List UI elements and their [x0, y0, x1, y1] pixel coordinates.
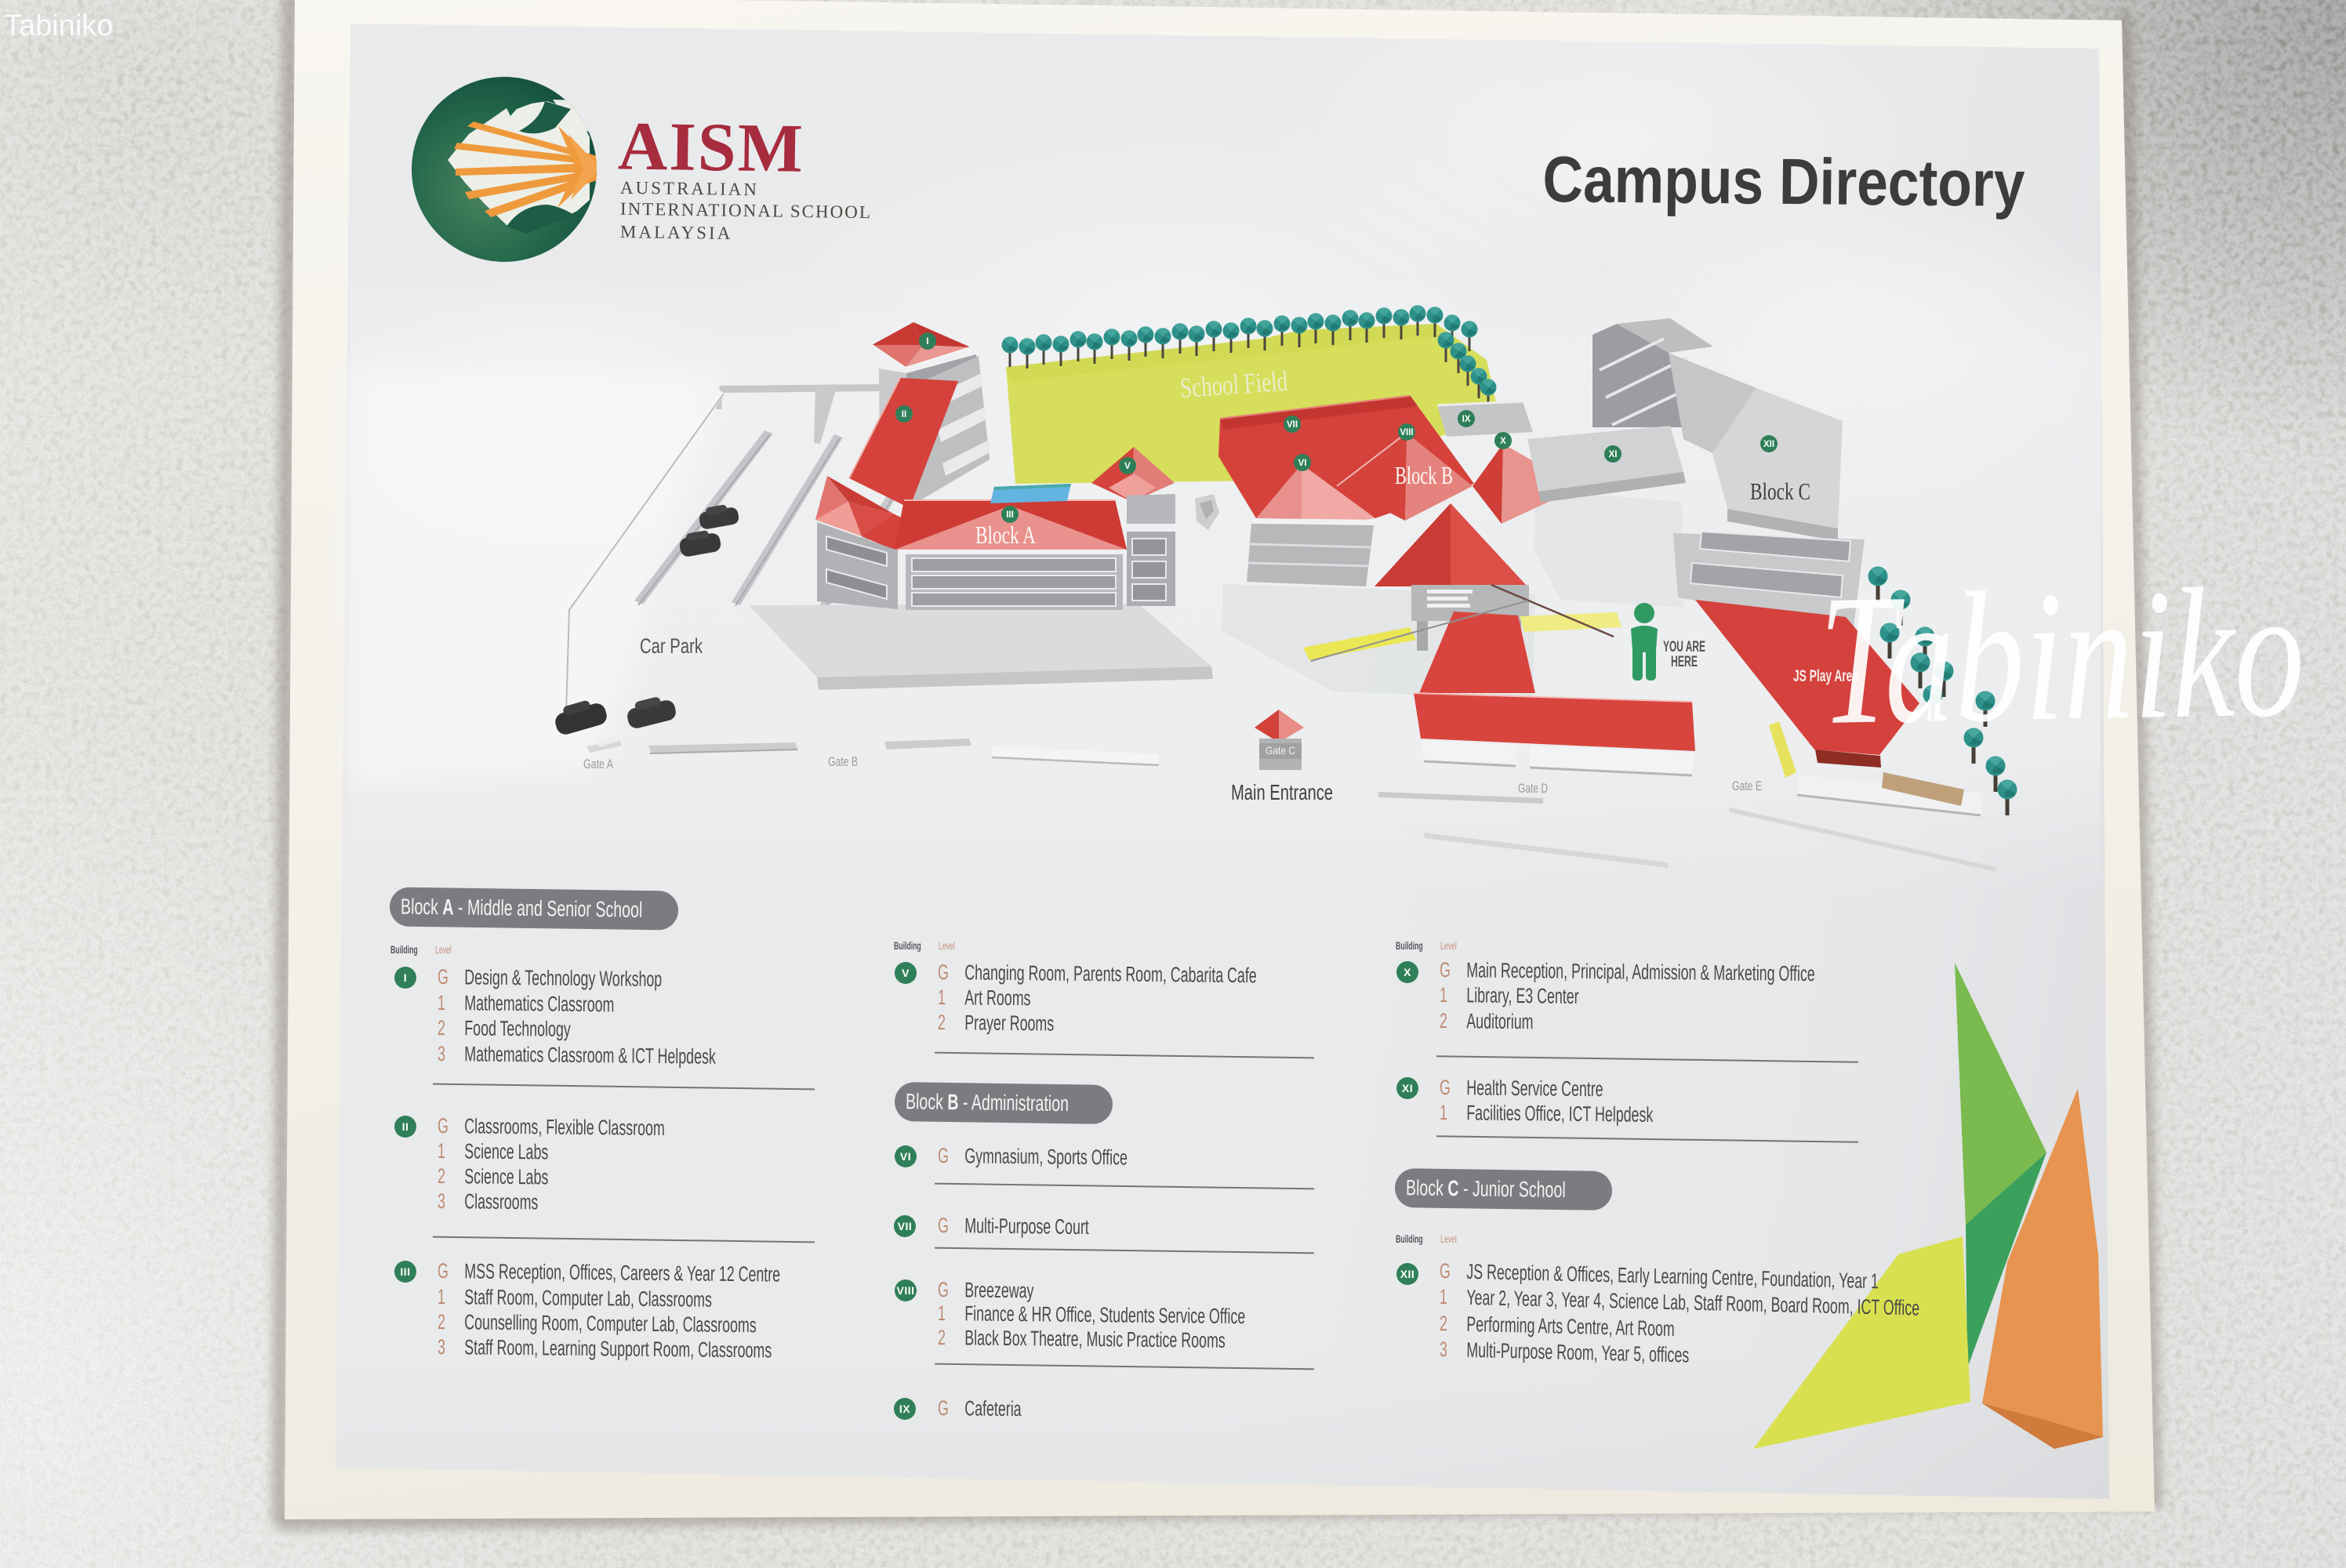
- svg-text:Car Park: Car Park: [640, 634, 703, 658]
- svg-text:Block C: Block C: [1750, 477, 1810, 505]
- svg-text:XI: XI: [1609, 450, 1618, 459]
- svg-text:II: II: [902, 410, 906, 419]
- svg-text:V: V: [1124, 462, 1131, 471]
- svg-text:YOU ARE: YOU ARE: [1663, 639, 1705, 655]
- svg-text:IX: IX: [1462, 415, 1471, 424]
- svg-text:Gate E: Gate E: [1732, 779, 1762, 793]
- svg-text:Gate B: Gate B: [828, 754, 858, 769]
- svg-text:VII: VII: [1287, 420, 1298, 430]
- svg-text:HERE: HERE: [1671, 654, 1698, 670]
- svg-text:X: X: [1500, 437, 1506, 446]
- svg-text:Gate C: Gate C: [1266, 744, 1295, 757]
- svg-text:XII: XII: [1763, 440, 1774, 449]
- svg-text:VI: VI: [1298, 459, 1307, 468]
- svg-text:Main Entrance: Main Entrance: [1231, 780, 1333, 804]
- svg-text:Gate A: Gate A: [583, 757, 613, 771]
- svg-text:III: III: [1006, 510, 1014, 520]
- svg-text:Gate D: Gate D: [1518, 781, 1548, 796]
- svg-text:Block A: Block A: [975, 521, 1036, 549]
- svg-text:Block B: Block B: [1395, 461, 1453, 489]
- svg-text:VIII: VIII: [1400, 428, 1413, 437]
- svg-text:I: I: [926, 337, 928, 347]
